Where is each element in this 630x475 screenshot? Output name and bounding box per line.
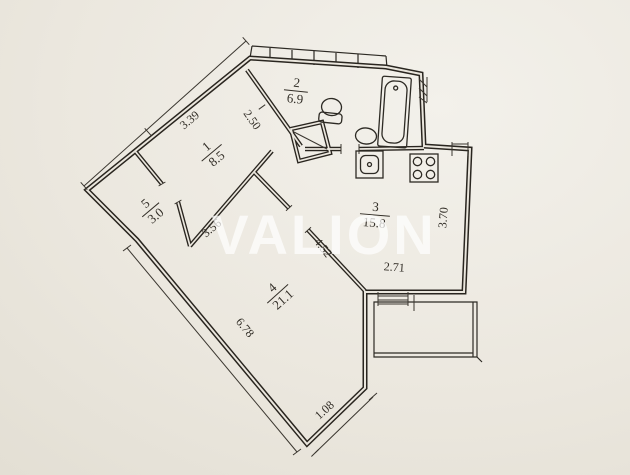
watermark: VALION (211, 203, 436, 266)
dim-6-78: 6.78 (233, 315, 257, 340)
room-2-area: 6.9 (286, 90, 304, 107)
room-1-number: 1 (199, 138, 214, 154)
room-4-label: 4 21.1 (257, 272, 299, 314)
room-5-number: 5 (138, 195, 153, 211)
kitchen-fixtures (356, 151, 438, 182)
sink-icon (355, 127, 378, 145)
stove-icon (410, 154, 438, 182)
balcony (374, 302, 482, 362)
room-2-label: 2 6.9 (282, 74, 309, 107)
floor-plan-photo: 1 8.5 2 6.9 3 15.8 4 21.1 5 3.0 3.39 2.5… (0, 0, 630, 475)
washing-machine-icon (356, 151, 383, 178)
bathroom-fixtures (318, 76, 411, 148)
room-1-label: 1 8.5 (191, 132, 231, 172)
dim-3-70: 3.70 (435, 207, 451, 229)
room-2-number: 2 (293, 75, 301, 91)
dim-2-50: 2.50 (241, 107, 265, 132)
floor-plan-drawing: 1 8.5 2 6.9 3 15.8 4 21.1 5 3.0 3.39 2.5… (0, 0, 630, 475)
bathtub-icon (378, 76, 412, 148)
room-5-label: 5 3.0 (132, 190, 169, 228)
